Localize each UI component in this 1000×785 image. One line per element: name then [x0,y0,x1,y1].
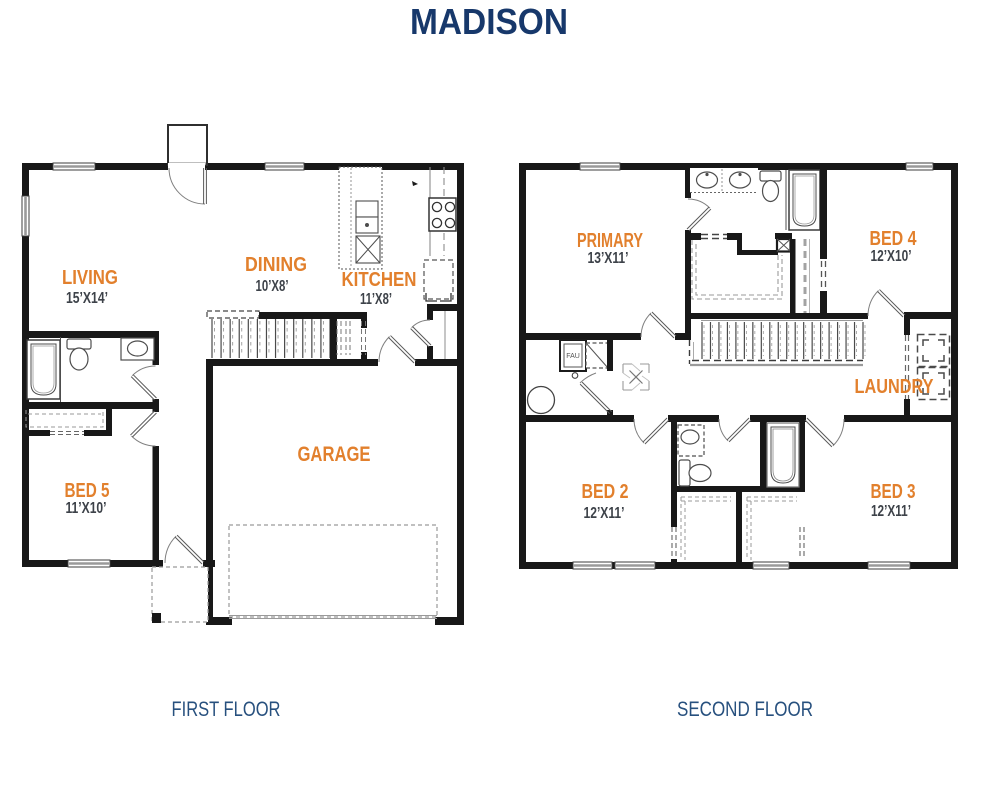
svg-text:GARAGE: GARAGE [298,443,371,466]
svg-text:12’X11’: 12’X11’ [871,503,911,520]
svg-text:12’X10’: 12’X10’ [871,248,912,265]
svg-text:BED 3: BED 3 [871,481,916,503]
svg-text:SECOND FLOOR: SECOND FLOOR [677,698,813,721]
svg-text:FIRST FLOOR: FIRST FLOOR [172,698,281,721]
svg-text:KITCHEN: KITCHEN [342,269,417,291]
svg-text:11’X8’: 11’X8’ [360,291,392,308]
svg-text:LAUNDRY: LAUNDRY [855,376,935,398]
svg-text:10’X8’: 10’X8’ [256,278,289,295]
svg-text:FAU: FAU [566,353,580,360]
svg-text:13’X11’: 13’X11’ [588,250,629,267]
svg-text:BED 5: BED 5 [65,480,110,502]
svg-text:12’X11’: 12’X11’ [584,505,625,522]
svg-text:PRIMARY: PRIMARY [577,230,643,252]
svg-text:BED 2: BED 2 [582,481,629,503]
svg-text:LIVING: LIVING [62,267,118,289]
svg-text:11’X10’: 11’X10’ [66,500,107,517]
svg-text:BED 4: BED 4 [870,228,918,250]
svg-text:DINING: DINING [245,254,307,276]
svg-text:MADISON: MADISON [410,1,568,42]
svg-text:15’X14’: 15’X14’ [66,290,108,307]
